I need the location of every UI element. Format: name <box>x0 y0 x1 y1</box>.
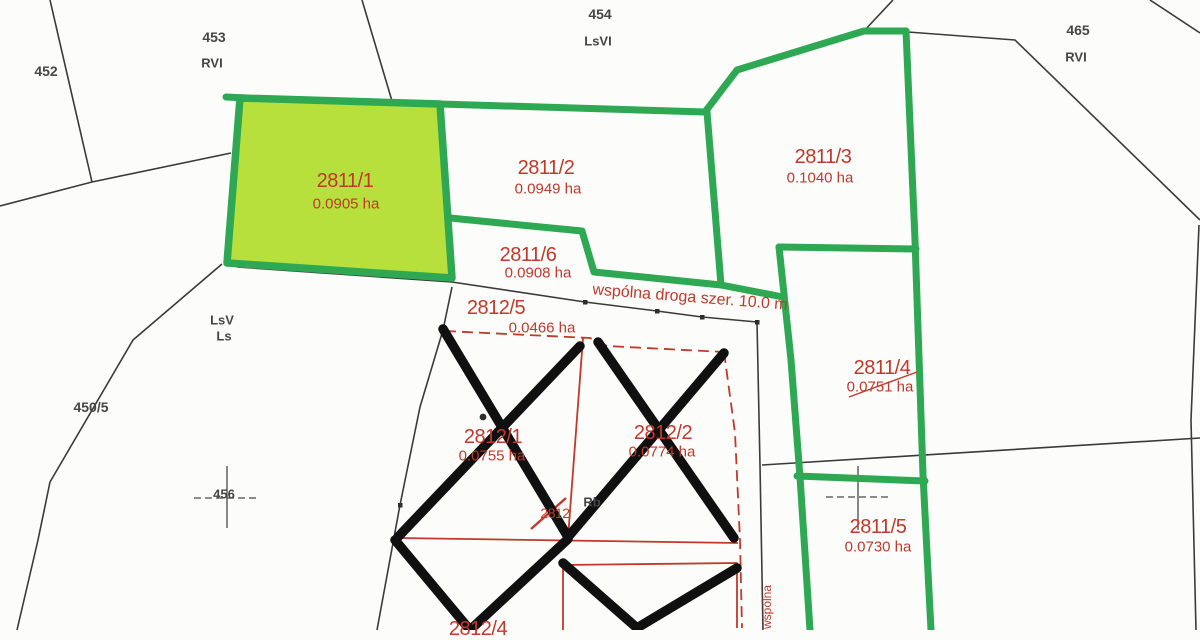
parcel-label-2811-4: 2811/4 <box>854 358 911 378</box>
boundary-452-west <box>0 182 92 206</box>
green-corner-stub <box>226 97 246 98</box>
struck-old-parcel-number: 2812 <box>540 506 569 520</box>
red-dashed-east <box>724 352 742 628</box>
survey-dot <box>655 309 660 314</box>
x-mark-2812-4-a <box>395 540 470 630</box>
boundary-far-east-vertical <box>1191 225 1199 630</box>
black-boundary-lines <box>0 0 1200 630</box>
land-class-454: LsVI <box>584 35 611 48</box>
parcel-area-2811-2: 0.0949 ha <box>515 182 582 197</box>
land-class-rb: Rb <box>583 496 600 509</box>
parcel-area-2812-2: 0.0774 ha <box>629 445 696 460</box>
parcel-area-2812-5: 0.0466 ha <box>509 321 576 336</box>
boundary-east-horizontal <box>762 438 1200 465</box>
parcel-label-2812-2: 2812/2 <box>634 423 692 443</box>
survey-dot-bold <box>480 414 487 421</box>
boundary-452-453 <box>50 0 92 182</box>
parcel-label-2812-5: 2812/5 <box>467 298 525 318</box>
neighbor-label-454: 454 <box>588 7 611 21</box>
boundary-465-corner <box>1150 0 1200 33</box>
boundary-450-5 <box>17 264 222 630</box>
green-north-boundary <box>440 31 906 112</box>
x-mark-2812-3-b <box>637 568 737 628</box>
parcel-area-2811-5: 0.0730 ha <box>845 540 912 555</box>
neighbor-label-452: 452 <box>34 64 57 78</box>
neighbor-label-465: 465 <box>1066 23 1089 37</box>
survey-dot <box>398 503 403 508</box>
parcel-area-2812-1: 0.0755 ha <box>459 449 526 464</box>
land-class-453: RVI <box>201 57 222 70</box>
boundary-2812-west <box>377 287 452 630</box>
boundary-2812-east <box>757 322 763 630</box>
cadastral-map-canvas <box>0 0 1200 630</box>
land-class-465: RVI <box>1065 51 1086 64</box>
neighbor-label-450-5: 450/5 <box>73 400 108 414</box>
parcel-label-2811-1: 2811/1 <box>317 171 374 191</box>
green-divider-2811-2-3 <box>707 112 721 285</box>
parcel-label-2811-2: 2811/2 <box>518 158 575 178</box>
boundary-465-west <box>908 32 1200 220</box>
green-divider-2811-4-5 <box>797 476 925 481</box>
parcel-label-2812-4: 2812/4 <box>449 619 507 639</box>
parcel-area-2811-3: 0.1040 ha <box>787 171 854 186</box>
bold-cross-marks <box>395 329 737 630</box>
parcel-label-2811-5: 2811/5 <box>850 517 907 537</box>
x-mark-2812-3-a <box>563 563 637 628</box>
parcel-area-2811-6: 0.0908 ha <box>505 266 572 281</box>
boundary-453-454 <box>362 0 392 101</box>
survey-dot <box>755 320 760 325</box>
green-divider-2811-3-4 <box>779 247 916 249</box>
boundary-453-south <box>92 153 231 182</box>
land-class-ls: Ls <box>216 330 231 343</box>
land-class-lsv: LsV <box>210 314 234 327</box>
parcel-area-2811-1: 0.0905 ha <box>313 197 380 212</box>
parcel-label-2812-1: 2812/1 <box>464 427 522 447</box>
x-mark-2812-4-b <box>470 539 568 630</box>
survey-dot <box>700 315 705 320</box>
survey-dot <box>583 300 588 305</box>
neighbor-label-456: 456 <box>213 488 235 501</box>
parcel-label-2811-6: 2811/6 <box>500 245 557 265</box>
red-dashed-north <box>445 331 724 352</box>
neighbor-label-453: 453 <box>202 30 225 44</box>
parcel-label-2811-3: 2811/3 <box>795 147 852 167</box>
parcel-area-2811-4: 0.0751 ha <box>847 380 914 395</box>
boundary-454-east <box>864 0 893 31</box>
cadastral-map-page: { "map": { "canvas": {"width": 1200, "he… <box>0 0 1200 630</box>
red-divider-2812-1-2 <box>568 338 583 538</box>
road-label-vertical: wspólna <box>761 585 773 629</box>
